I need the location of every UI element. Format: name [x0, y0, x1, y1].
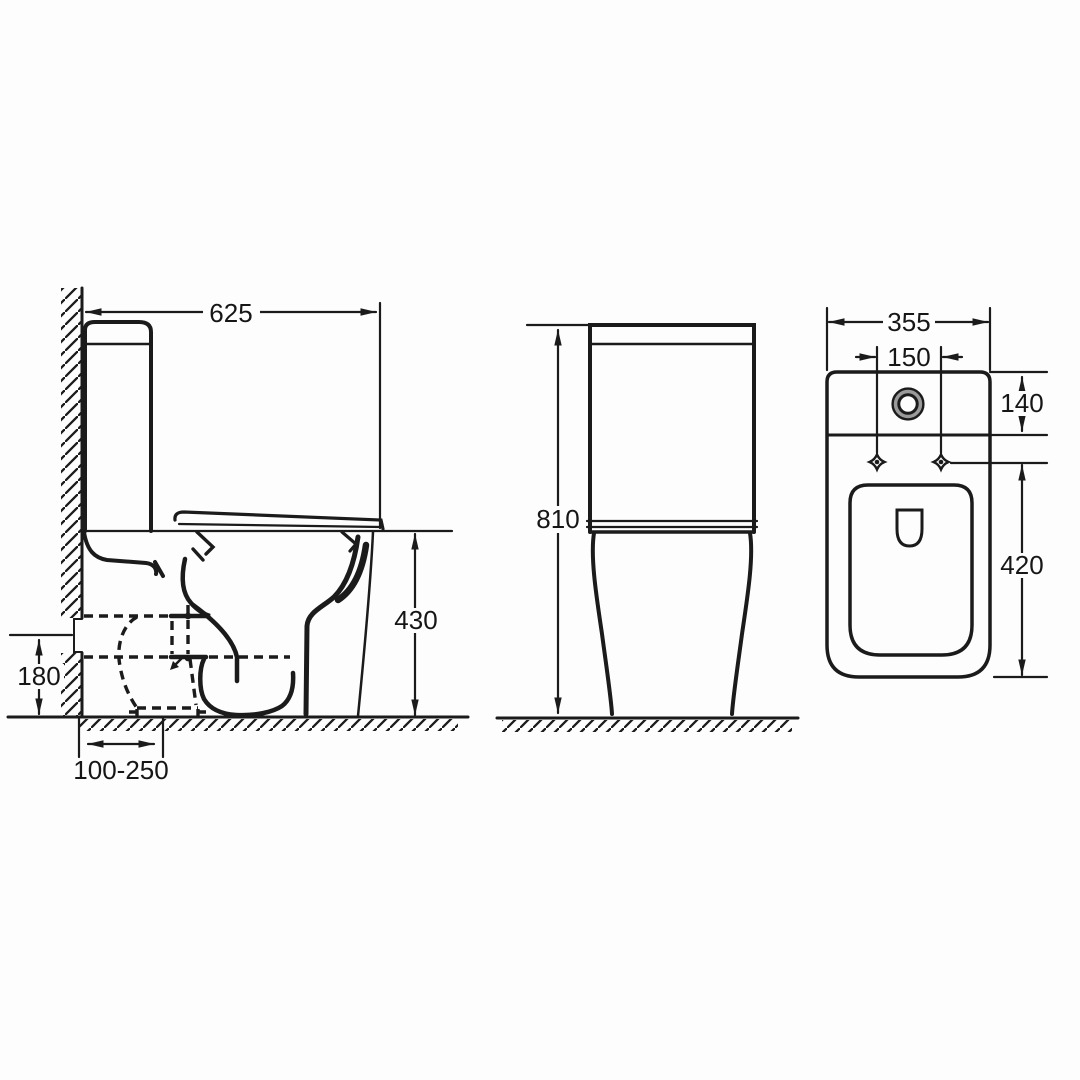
dim-label-810: 810: [536, 504, 579, 534]
floor-hatch-front: [502, 720, 792, 732]
pipe-centre-dot-lower: [185, 655, 192, 662]
dim-label-430: 430: [394, 605, 437, 635]
dim-label-420: 420: [1000, 550, 1043, 580]
technical-drawing-page: 625 430 180 100-250: [0, 0, 1080, 1080]
pipe-centre-dot-upper: [185, 613, 192, 620]
dim-label-100-250: 100-250: [73, 755, 168, 785]
floor-hatch-side: [80, 719, 458, 731]
paper-background: [0, 0, 1080, 1080]
dim-label-150: 150: [887, 342, 930, 372]
wall-hatch-upper: [61, 288, 82, 618]
dim-label-180: 180: [17, 661, 60, 691]
fixing-hole-dot: [875, 460, 880, 465]
fixing-hole-dot: [939, 460, 944, 465]
wall-hatch-lower: [61, 653, 82, 717]
toilet-dimension-diagram: 625 430 180 100-250: [0, 0, 1080, 1080]
dim-label-625: 625: [209, 298, 252, 328]
dim-label-140: 140: [1000, 388, 1043, 418]
dim-label-355: 355: [887, 307, 930, 337]
